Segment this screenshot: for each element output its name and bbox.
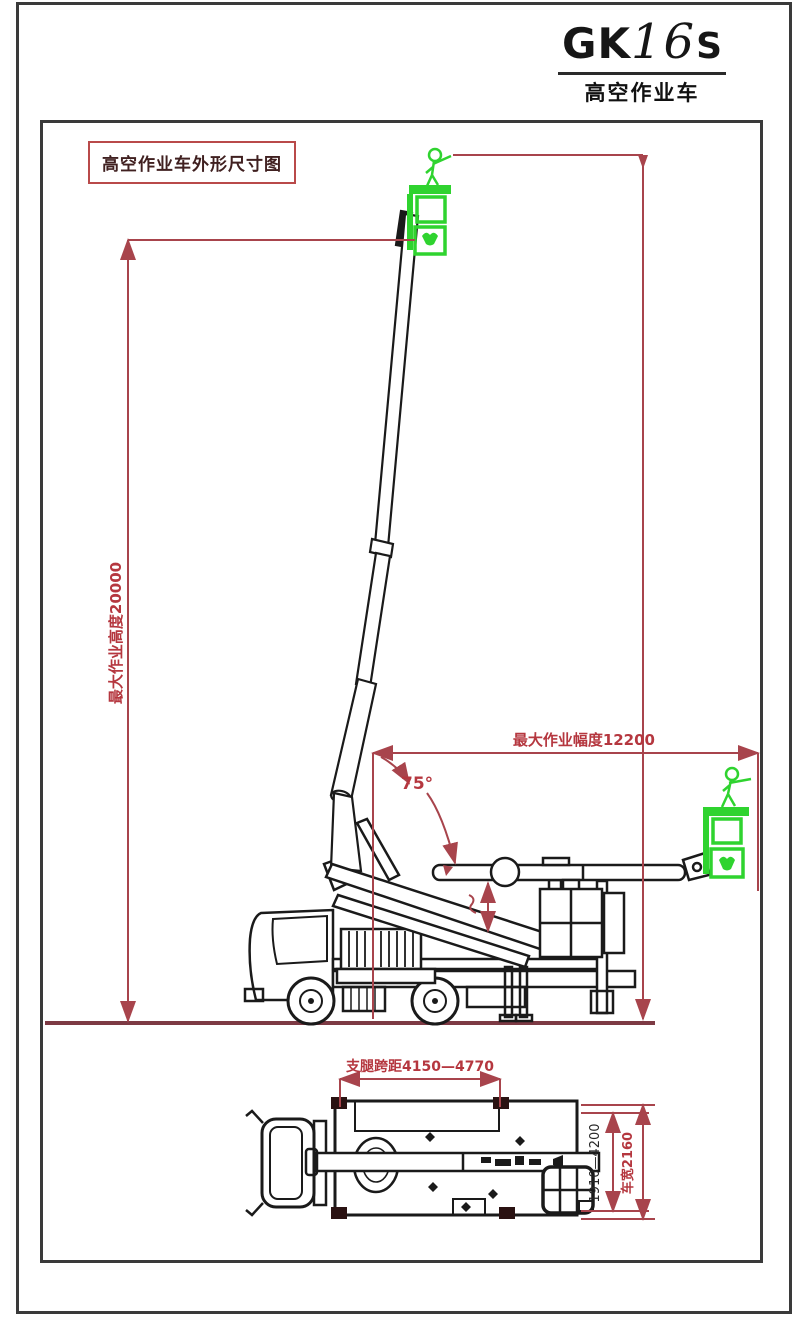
angle-leader <box>427 793 455 863</box>
model-subtitle: 高空作业车 <box>552 77 732 107</box>
right-basket <box>703 768 751 877</box>
model-suffix: S <box>696 26 722 67</box>
basket-rail <box>703 807 749 816</box>
dimension-drawing: 最大作业高度20000 最大作业幅度12200 75° 支腿跨距4150—477… <box>43 123 766 1266</box>
dim-outrigger-width-label: 1910—4200 <box>588 1123 603 1202</box>
truck-plan-view <box>246 1097 599 1219</box>
basket-logo <box>719 857 735 871</box>
mirror-wing <box>246 1111 263 1123</box>
model-digits: 16 <box>631 14 696 70</box>
dim-height-label: 最大作业高度20000 <box>107 562 125 704</box>
drawing-caption: 高空作业车外形尺寸图 <box>88 141 296 184</box>
angle-label: 75° <box>401 774 433 794</box>
title-block: GK16S 高空作业车 <box>552 14 732 107</box>
outrigger-pad <box>331 1207 347 1219</box>
model-prefix: GK <box>562 19 631 68</box>
outrigger-pad <box>499 1207 515 1219</box>
dim-vehicle-width-label: 车宽2160 <box>620 1132 636 1194</box>
basket-logo <box>422 233 438 246</box>
dim-span-label: 支腿跨距4150—4770 <box>345 1058 494 1075</box>
top-basket <box>407 149 451 254</box>
mirror-wing <box>246 1203 263 1215</box>
worker-figure <box>726 768 738 780</box>
lift-cylinder <box>357 819 399 880</box>
boom-heel <box>331 793 361 871</box>
boom-cylinder-circle <box>491 858 519 886</box>
dim-radius-label: 最大作业幅度12200 <box>513 731 655 749</box>
drawing-page: GK16S 高空作业车 <box>0 0 800 1324</box>
toolbox-front <box>343 987 385 1011</box>
toolbox-rear <box>467 987 525 1007</box>
model-designation: GK16S <box>558 14 726 75</box>
drawing-frame: 最大作业高度20000 最大作业幅度12200 75° 支腿跨距4150—477… <box>40 120 763 1263</box>
basket-rail <box>409 185 451 194</box>
worker-figure <box>429 149 441 161</box>
